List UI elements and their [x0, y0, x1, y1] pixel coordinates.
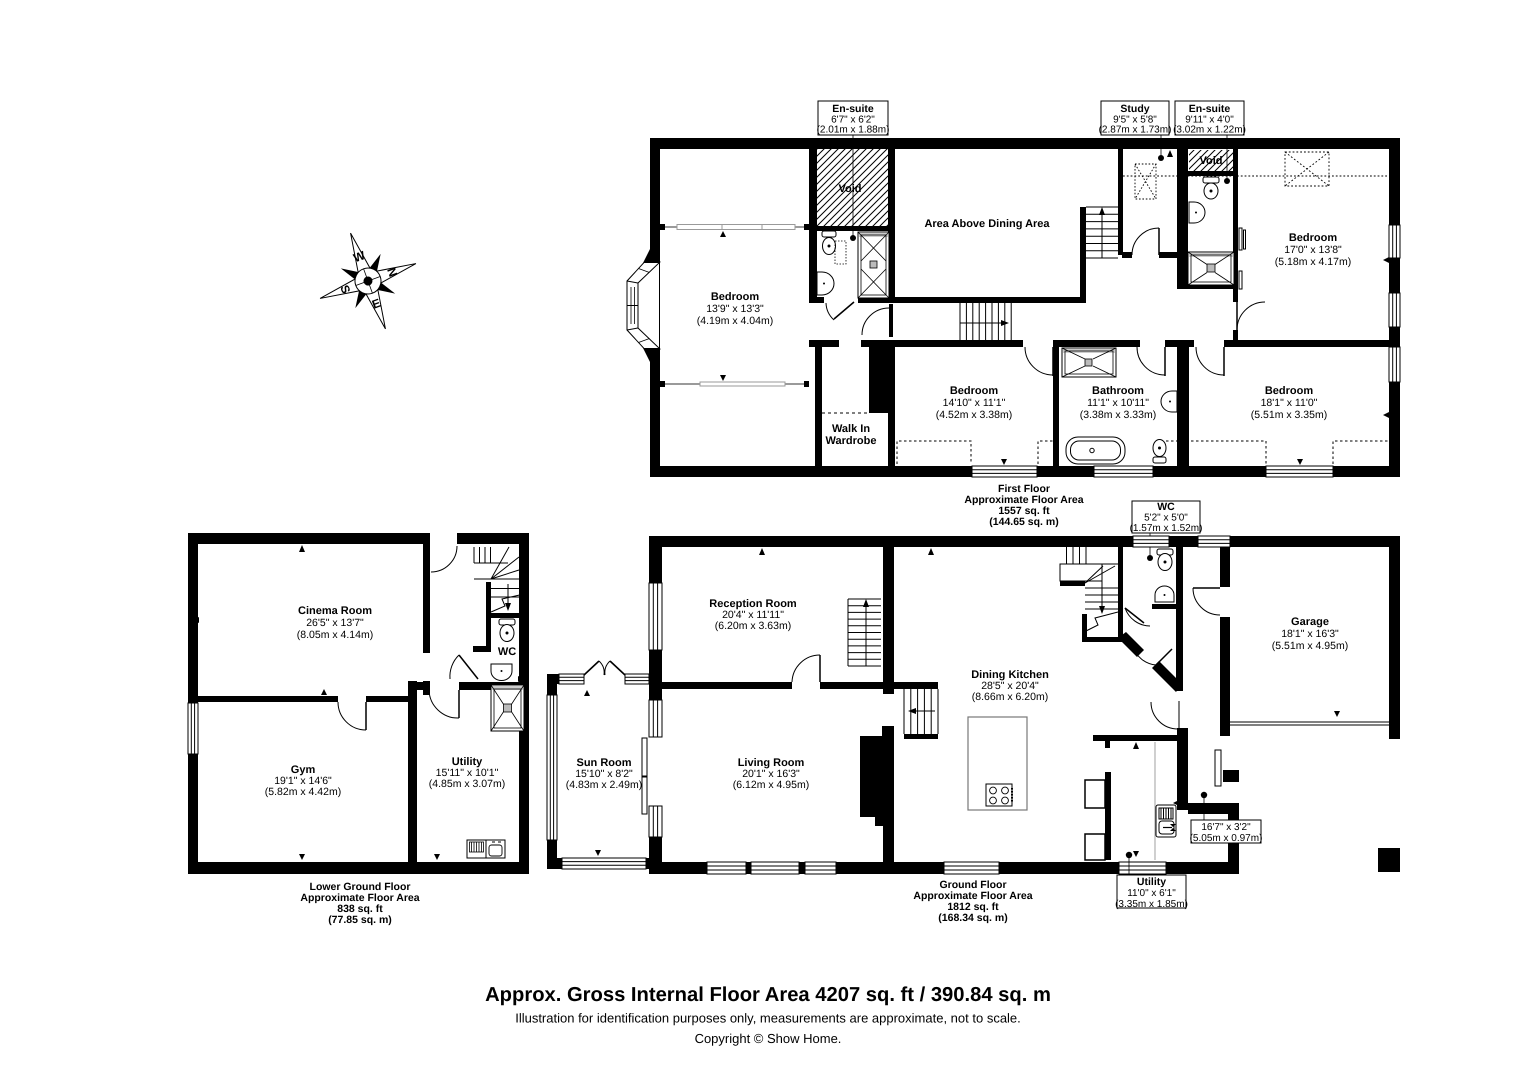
svg-text:(4.52m x 3.38m): (4.52m x 3.38m)	[936, 409, 1012, 421]
svg-text:En-suite: En-suite	[1189, 103, 1231, 115]
svg-text:(4.83m x 2.49m): (4.83m x 2.49m)	[566, 779, 642, 791]
svg-text:Walk In: Walk In	[832, 423, 870, 435]
svg-text:(3.02m x 1.22m): (3.02m x 1.22m)	[1173, 125, 1246, 136]
svg-text:Cinema Room: Cinema Room	[298, 605, 372, 617]
svg-text:Utility: Utility	[1137, 876, 1166, 888]
svg-text:(5.51m x 3.35m): (5.51m x 3.35m)	[1251, 409, 1327, 421]
svg-text:18'1" x 16'3": 18'1" x 16'3"	[1281, 628, 1339, 640]
svg-text:13'9" x 13'3": 13'9" x 13'3"	[706, 303, 764, 315]
svg-text:Garage: Garage	[1291, 616, 1329, 628]
svg-text:(3.35m x 1.85m): (3.35m x 1.85m)	[1115, 899, 1188, 910]
svg-text:Wardrobe: Wardrobe	[826, 435, 877, 447]
svg-text:(77.85 sq. m): (77.85 sq. m)	[328, 914, 392, 926]
svg-text:Void: Void	[838, 183, 861, 195]
svg-text:(5.82m x 4.42m): (5.82m x 4.42m)	[265, 786, 341, 798]
svg-text:(4.19m x 4.04m): (4.19m x 4.04m)	[697, 315, 773, 327]
svg-text:(8.05m x 4.14m): (8.05m x 4.14m)	[297, 629, 373, 641]
svg-text:11'1" x 10'11": 11'1" x 10'11"	[1087, 397, 1149, 409]
svg-text:Bathroom: Bathroom	[1092, 385, 1144, 397]
svg-text:(6.12m x 4.95m): (6.12m x 4.95m)	[733, 779, 809, 791]
svg-text:WC: WC	[1157, 501, 1175, 513]
svg-text:(3.38m x 3.33m): (3.38m x 3.33m)	[1080, 409, 1156, 421]
svg-text:(6.20m x 3.63m): (6.20m x 3.63m)	[715, 620, 791, 632]
svg-text:Illustration for identificatio: Illustration for identification purposes…	[515, 1011, 1021, 1026]
svg-text:18'1" x 11'0": 18'1" x 11'0"	[1261, 397, 1318, 409]
svg-text:17'0" x 13'8": 17'0" x 13'8"	[1284, 244, 1342, 256]
svg-text:WC: WC	[498, 646, 516, 658]
svg-text:(144.65 sq. m): (144.65 sq. m)	[989, 516, 1058, 528]
svg-text:(5.51m x 4.95m): (5.51m x 4.95m)	[1272, 640, 1348, 652]
svg-text:(2.01m x 1.88m): (2.01m x 1.88m)	[817, 125, 890, 136]
svg-text:5'2" x 5'0": 5'2" x 5'0"	[1144, 513, 1188, 524]
svg-text:Void: Void	[1199, 155, 1222, 167]
svg-text:Bedroom: Bedroom	[950, 385, 999, 397]
svg-text:Approx. Gross Internal Floor A: Approx. Gross Internal Floor Area 4207 s…	[485, 984, 1051, 1006]
svg-text:En-suite: En-suite	[832, 103, 874, 115]
svg-text:11'0" x 6'1": 11'0" x 6'1"	[1127, 888, 1176, 899]
svg-text:(5.18m x 4.17m): (5.18m x 4.17m)	[1275, 256, 1351, 268]
svg-text:(1.57m x 1.52m): (1.57m x 1.52m)	[1130, 523, 1203, 534]
svg-text:Study: Study	[1120, 103, 1149, 115]
svg-text:Bedroom: Bedroom	[711, 291, 760, 303]
svg-text:Bedroom: Bedroom	[1265, 385, 1314, 397]
svg-text:Copyright © Show Home.: Copyright © Show Home.	[695, 1031, 842, 1046]
svg-text:(2.87m x 1.73m): (2.87m x 1.73m)	[1099, 125, 1172, 136]
svg-text:(8.66m x 6.20m): (8.66m x 6.20m)	[972, 691, 1048, 703]
svg-text:(4.85m x 3.07m): (4.85m x 3.07m)	[429, 778, 505, 790]
svg-text:26'5" x 13'7": 26'5" x 13'7"	[306, 617, 364, 629]
svg-text:16'7" x 3'2": 16'7" x 3'2"	[1201, 822, 1251, 833]
svg-text:14'10" x 11'1": 14'10" x 11'1"	[943, 397, 1006, 409]
svg-text:(168.34 sq. m): (168.34 sq. m)	[938, 912, 1007, 924]
svg-text:Bedroom: Bedroom	[1289, 232, 1338, 244]
svg-text:Area Above Dining Area: Area Above Dining Area	[924, 218, 1050, 230]
svg-text:(5.05m x 0.97m): (5.05m x 0.97m)	[1190, 833, 1263, 844]
